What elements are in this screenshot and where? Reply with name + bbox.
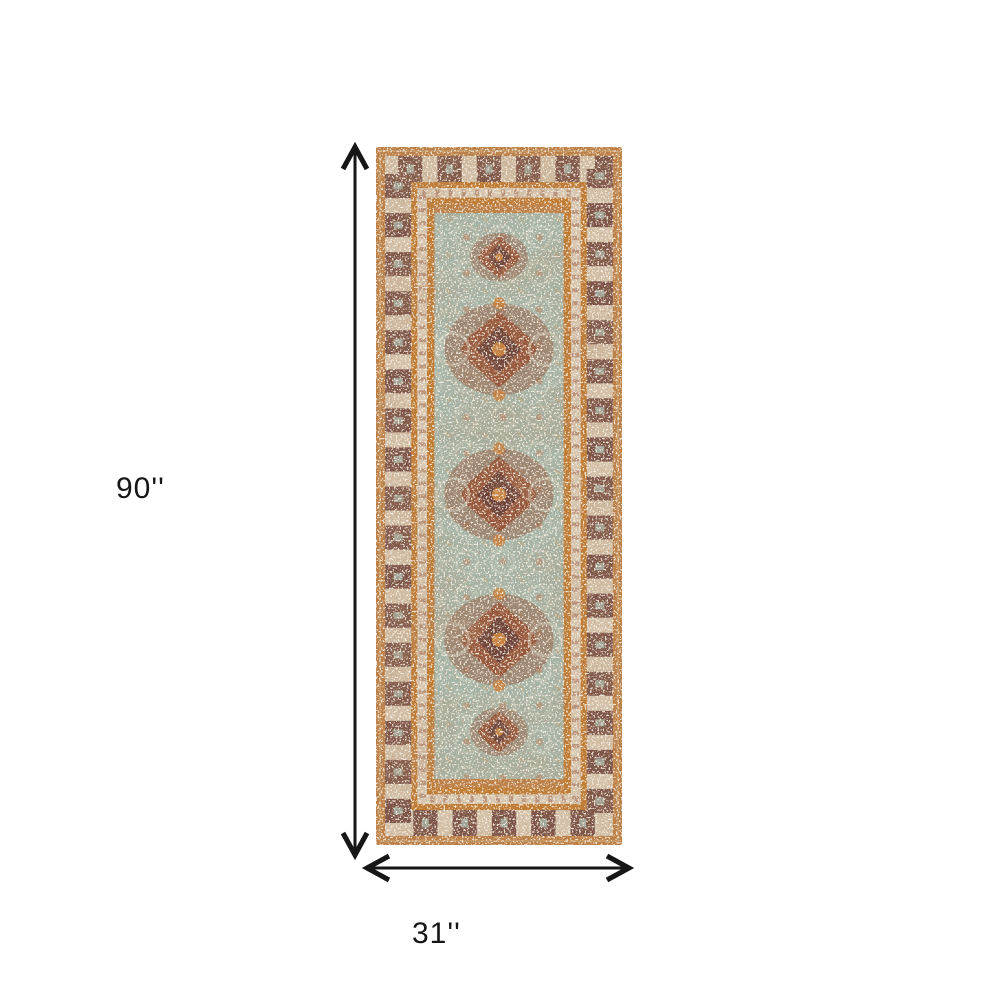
rug-art [376,147,622,845]
product-dimension-diagram: 90'' 31'' [0,0,1000,1000]
height-dimension-arrow [338,138,372,864]
rug-image [376,147,622,845]
width-dimension-label: 31'' [412,917,461,951]
width-dimension-arrow [356,852,640,884]
height-dimension-label: 90'' [116,472,165,506]
